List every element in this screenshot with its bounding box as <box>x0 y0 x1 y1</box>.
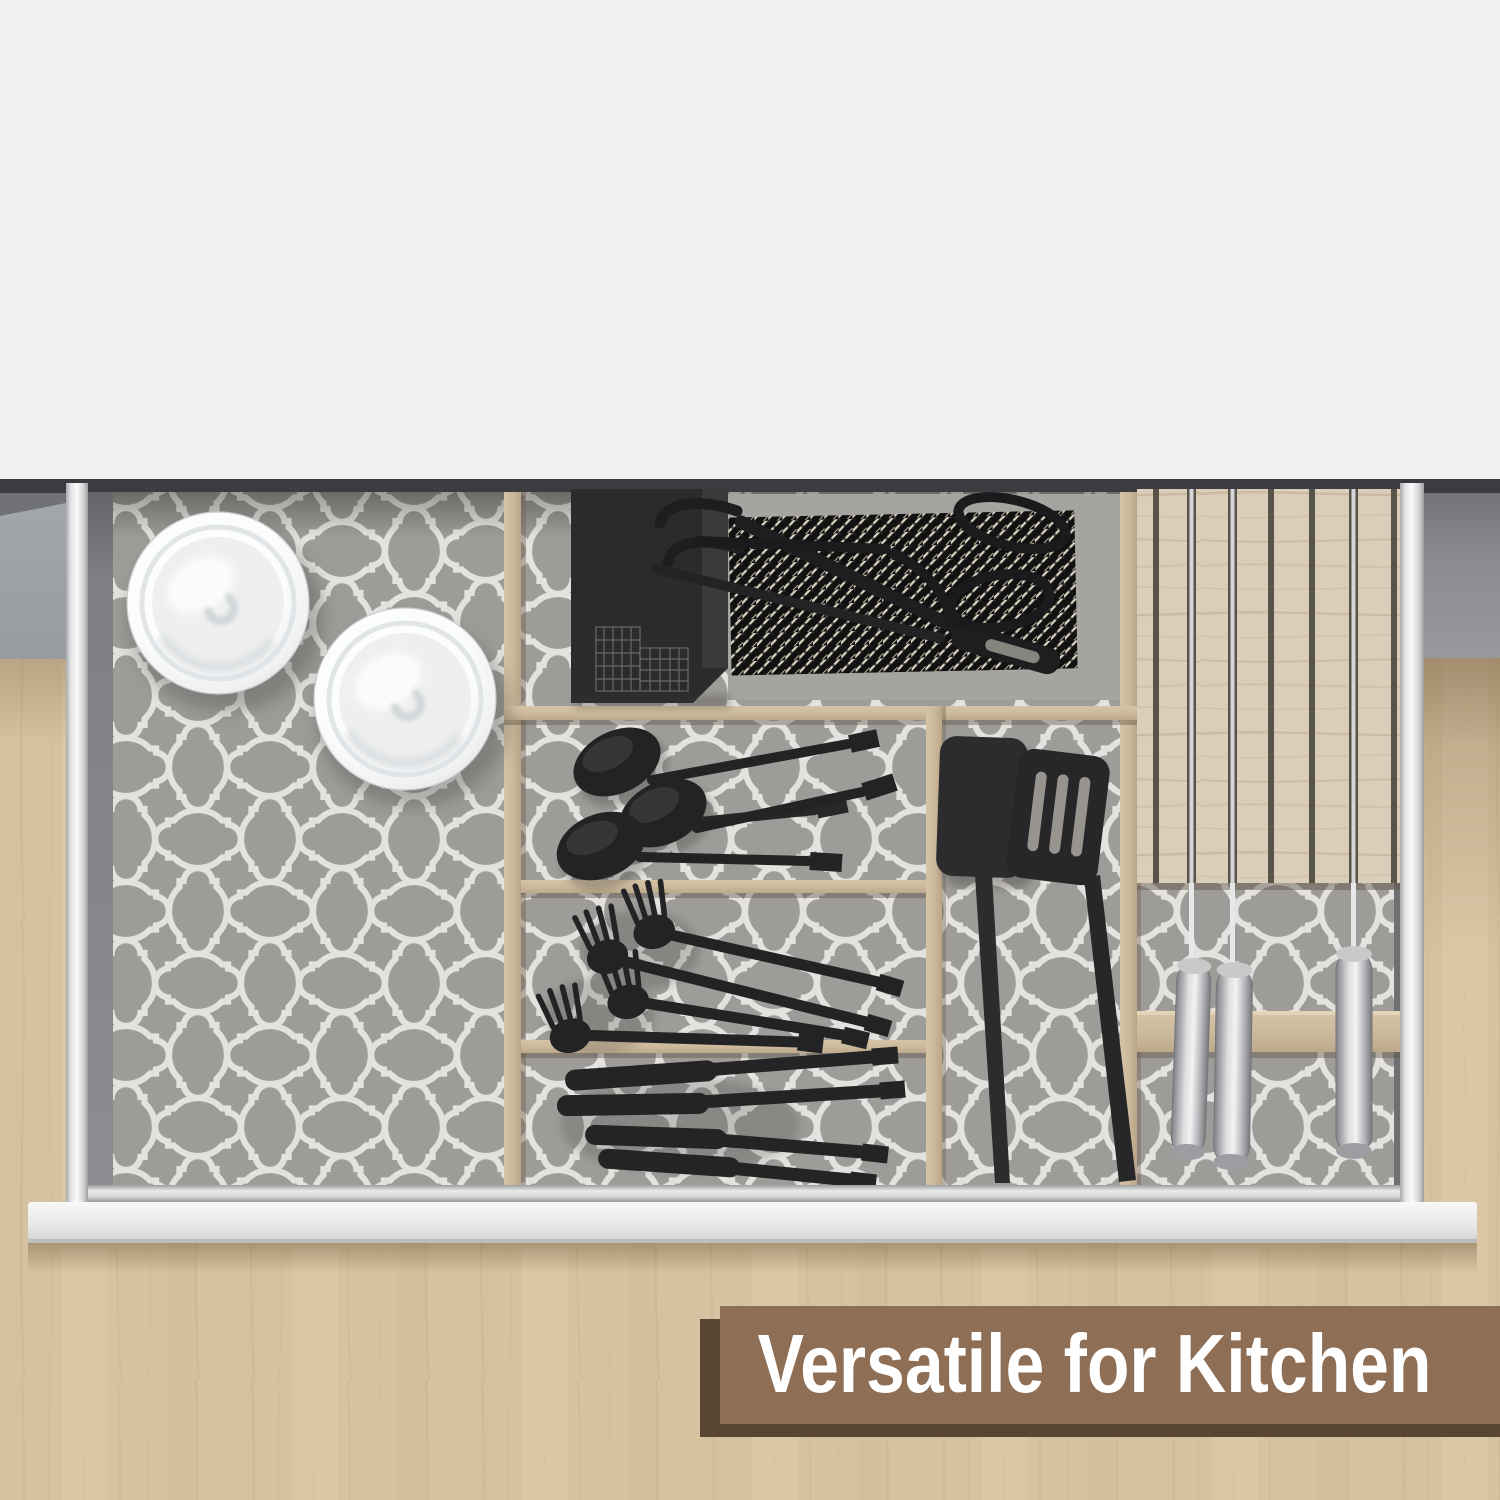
svg-text:Versatile for Kitchen: Versatile for Kitchen <box>758 1318 1432 1410</box>
